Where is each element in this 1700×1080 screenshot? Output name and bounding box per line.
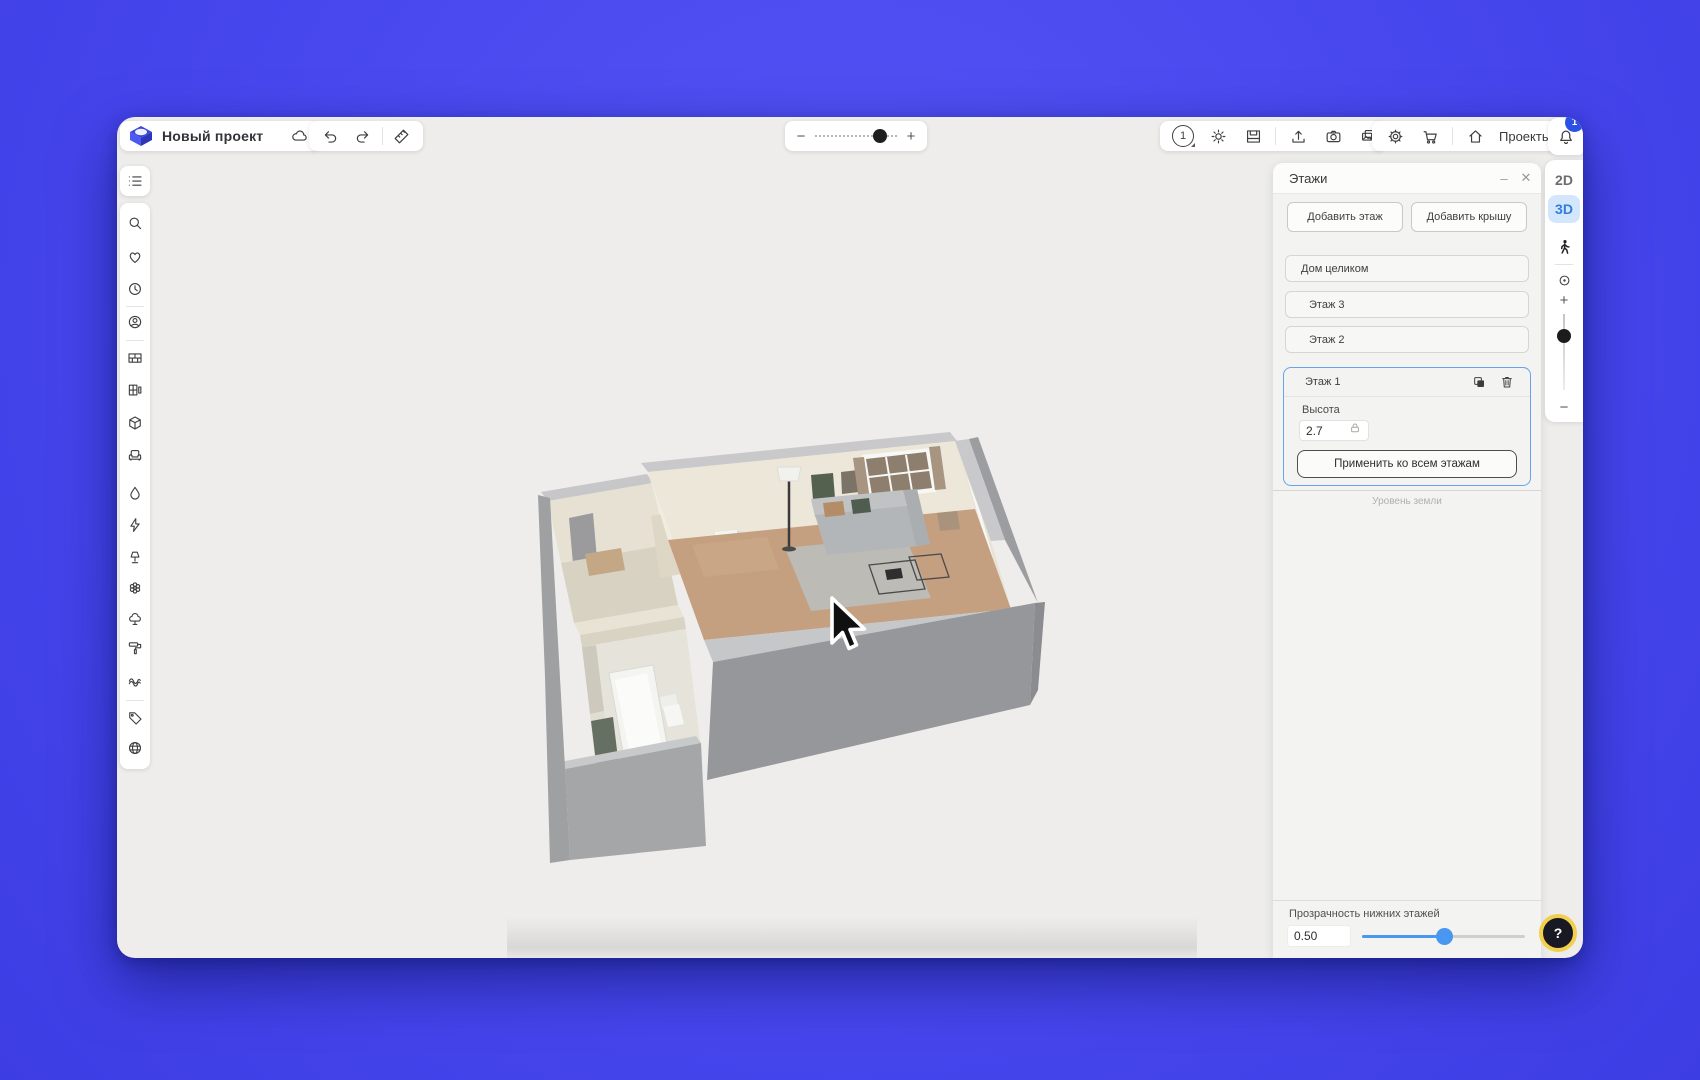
projects-label[interactable]: Проекты [1499,129,1551,144]
ruler-icon[interactable] [389,123,415,149]
transparency-slider-knob[interactable] [1436,928,1453,945]
walk-view-icon[interactable] [1545,236,1583,258]
mode-2d-button[interactable]: 2D [1545,168,1583,192]
add-floor-button[interactable]: Добавить этаж [1287,202,1403,232]
close-icon[interactable]: ✕ [1515,163,1537,193]
floors-panel: Этажи – ✕ Добавить этаж Добавить крышу Д… [1273,163,1541,958]
add-roof-button[interactable]: Добавить крышу [1411,202,1527,232]
height-label: Высота [1302,404,1340,416]
apply-all-floors-button[interactable]: Применить ко всем этажам [1297,450,1517,478]
ground-level-label: Уровень земли [1273,496,1541,507]
floors-panel-title: Этажи [1289,171,1327,186]
account-toolbar: Проекты [1372,121,1560,151]
camera-icon[interactable] [1320,123,1346,149]
zoom-out-button[interactable]: − [795,128,807,145]
help-button[interactable]: ? [1539,914,1577,952]
divider [1555,264,1573,265]
orbit-target-icon[interactable] [1545,271,1583,289]
zoom-slider-knob[interactable] [873,129,887,143]
sofa-pillow [851,498,871,514]
favorites-heart-icon[interactable] [126,248,144,266]
history-toolbar [309,121,423,151]
floor-lamp-shade [777,467,801,481]
canvas-bottom-shade [507,917,1197,958]
render-toolbar: 1 [1160,121,1386,151]
strip-zoom-out-button[interactable]: − [1545,398,1583,416]
construction-cube-icon[interactable] [126,414,144,432]
project-header: Новый проект [120,121,320,151]
view-mode-strip: 2D 3D + − [1545,160,1583,422]
duplicate-floor-icon[interactable] [1470,373,1488,391]
strip-zoom-in-button[interactable]: + [1545,291,1583,309]
side-chair [937,511,960,531]
search-icon[interactable] [126,214,144,232]
divider [126,340,144,341]
undo-icon[interactable] [317,123,343,149]
divider [1452,127,1453,145]
project-title: Новый проект [162,128,263,144]
objects-list-button[interactable] [120,166,150,196]
mode-3d-button-active[interactable]: 3D [1548,195,1580,223]
app-logo[interactable] [128,125,154,147]
height-lock-icon[interactable] [1348,421,1362,435]
snapshot-frame-icon[interactable] [1240,123,1266,149]
floor-1-label: Этаж 1 [1305,376,1340,388]
top-zoom-control: − + [785,121,927,151]
divider [126,306,144,307]
transparency-slider-fill [1362,935,1444,938]
plumbing-droplet-icon[interactable] [126,484,144,502]
shopping-cart-icon[interactable] [1417,123,1443,149]
decor-flower-icon[interactable] [126,579,144,597]
zoom-slider-track[interactable] [815,135,897,137]
garden-tree-icon[interactable] [126,609,144,627]
dropdown-corner [1191,143,1195,147]
floor-1-card-header[interactable]: Этаж 1 [1284,368,1530,397]
electric-bolt-icon[interactable] [126,516,144,534]
price-tag-icon[interactable] [126,709,144,727]
laptop [885,568,903,580]
transparency-input[interactable] [1287,925,1351,947]
export-upload-icon[interactable] [1285,123,1311,149]
app-window: Новый проект − + 1 [117,117,1583,958]
catalog-toolbar [120,203,150,769]
floor-3-button[interactable]: Этаж 3 [1285,291,1529,318]
floor-number-icon[interactable]: 1 [1170,123,1196,149]
divider [126,700,144,701]
walls-bricks-icon[interactable] [126,349,144,367]
region-globe-icon[interactable] [126,739,144,757]
delete-floor-icon[interactable] [1498,373,1516,391]
sofa-pillow [823,501,845,517]
objects-list-icon [126,172,144,190]
lighting-lamp-icon[interactable] [126,548,144,566]
transparency-label: Прозрачность нижних этажей [1289,908,1440,920]
settings-gear-icon[interactable] [1382,123,1408,149]
sun-brightness-icon[interactable] [1205,123,1231,149]
furniture-armchair-icon[interactable] [126,446,144,464]
zoom-in-button[interactable]: + [905,128,917,145]
transparency-section: Прозрачность нижних этажей [1273,900,1541,958]
transparency-slider[interactable] [1362,935,1525,938]
notification-badge[interactable]: 1 [1565,117,1583,132]
whole-house-button[interactable]: Дом целиком [1285,255,1529,282]
windows-doors-icon[interactable] [126,381,144,399]
floor-lamp-base [782,547,796,552]
floors-panel-header[interactable]: Этажи – ✕ [1273,163,1541,194]
home-projects-icon[interactable] [1462,123,1488,149]
floor-1-card-selected[interactable]: Этаж 1 Высота Применить ко всем этажам [1283,367,1531,486]
floor-2-button[interactable]: Этаж 2 [1285,326,1529,353]
history-clock-icon[interactable] [126,280,144,298]
redo-icon[interactable] [349,123,375,149]
paint-roller-icon[interactable] [126,639,144,657]
ground-divider [1273,490,1541,491]
user-profile-icon[interactable] [126,313,144,331]
divider [1275,127,1276,145]
wall-art-1 [811,473,835,500]
divider [382,127,383,145]
textile-rug-icon[interactable] [126,671,144,689]
strip-zoom-knob[interactable] [1557,329,1571,343]
strip-zoom-track[interactable] [1563,314,1565,390]
minimize-icon[interactable]: – [1493,163,1515,193]
